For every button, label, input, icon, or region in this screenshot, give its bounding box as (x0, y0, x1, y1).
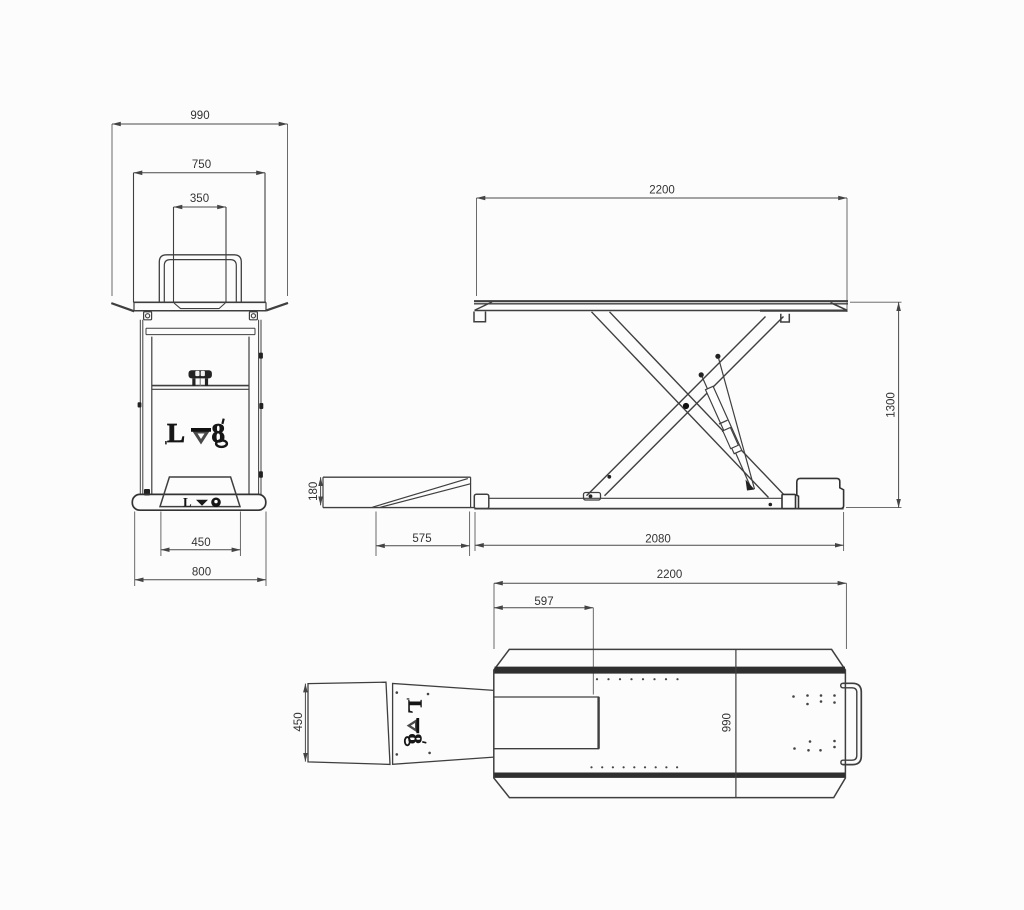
svg-text:575: 575 (412, 533, 431, 545)
svg-text:597: 597 (534, 596, 553, 608)
svg-text:1300: 1300 (886, 392, 898, 418)
svg-text:750: 750 (192, 159, 211, 171)
svg-text:990: 990 (722, 713, 734, 732)
svg-text:990: 990 (190, 110, 209, 122)
svg-text:2200: 2200 (657, 569, 683, 581)
svg-text:180: 180 (308, 482, 320, 501)
svg-text:2200: 2200 (649, 185, 675, 197)
svg-text:2080: 2080 (645, 534, 671, 546)
svg-text:800: 800 (192, 567, 211, 579)
svg-text:450: 450 (191, 537, 210, 549)
svg-text:L: L (183, 495, 192, 510)
svg-text:450: 450 (293, 712, 305, 731)
svg-text:350: 350 (190, 193, 209, 205)
